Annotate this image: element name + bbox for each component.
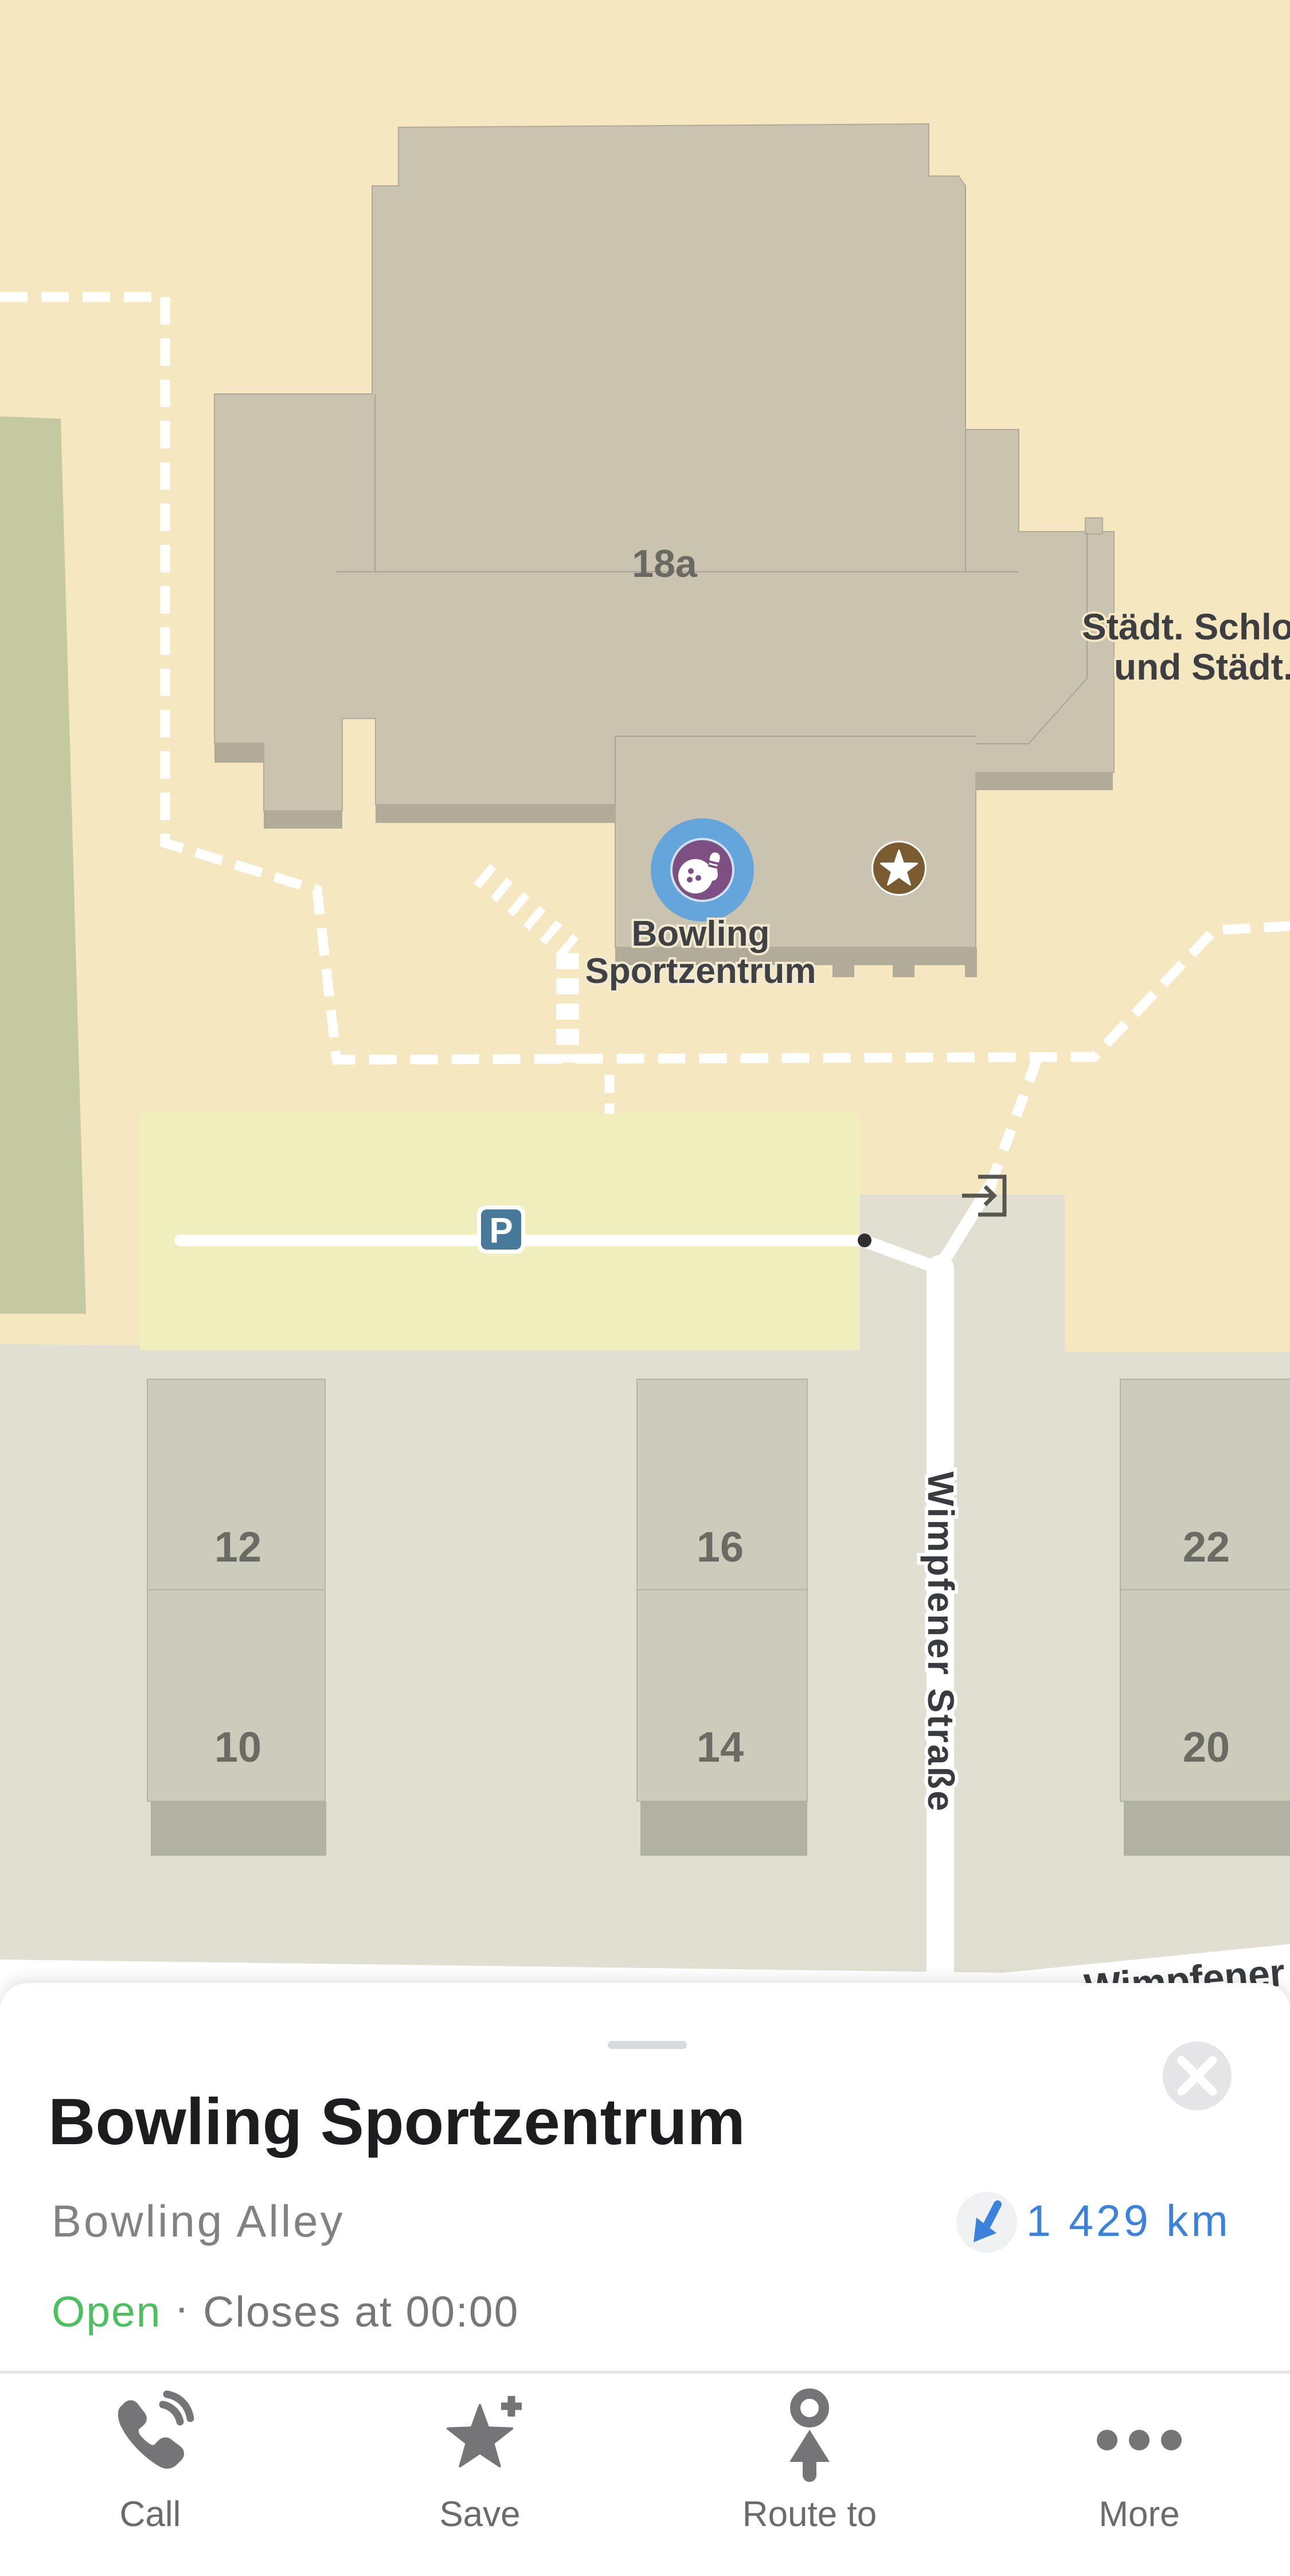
- svg-text:P: P: [489, 1211, 513, 1251]
- svg-text:Wimpfener Straße: Wimpfener Straße: [920, 1472, 961, 1813]
- svg-text:Städt. Schlo: Städt. Schlo: [1082, 606, 1290, 647]
- svg-text:14: 14: [697, 1723, 744, 1771]
- svg-text:und Städt.: und Städt.: [1114, 646, 1290, 688]
- svg-text:Sportzentrum: Sportzentrum: [585, 951, 816, 991]
- svg-text:12: 12: [214, 1523, 261, 1571]
- svg-text:20: 20: [1183, 1723, 1230, 1771]
- svg-text:Bowling: Bowling: [631, 914, 769, 954]
- svg-text:18a: 18a: [632, 542, 698, 586]
- svg-text:22: 22: [1183, 1523, 1230, 1571]
- svg-text:16: 16: [697, 1523, 744, 1571]
- svg-text:10: 10: [214, 1723, 261, 1771]
